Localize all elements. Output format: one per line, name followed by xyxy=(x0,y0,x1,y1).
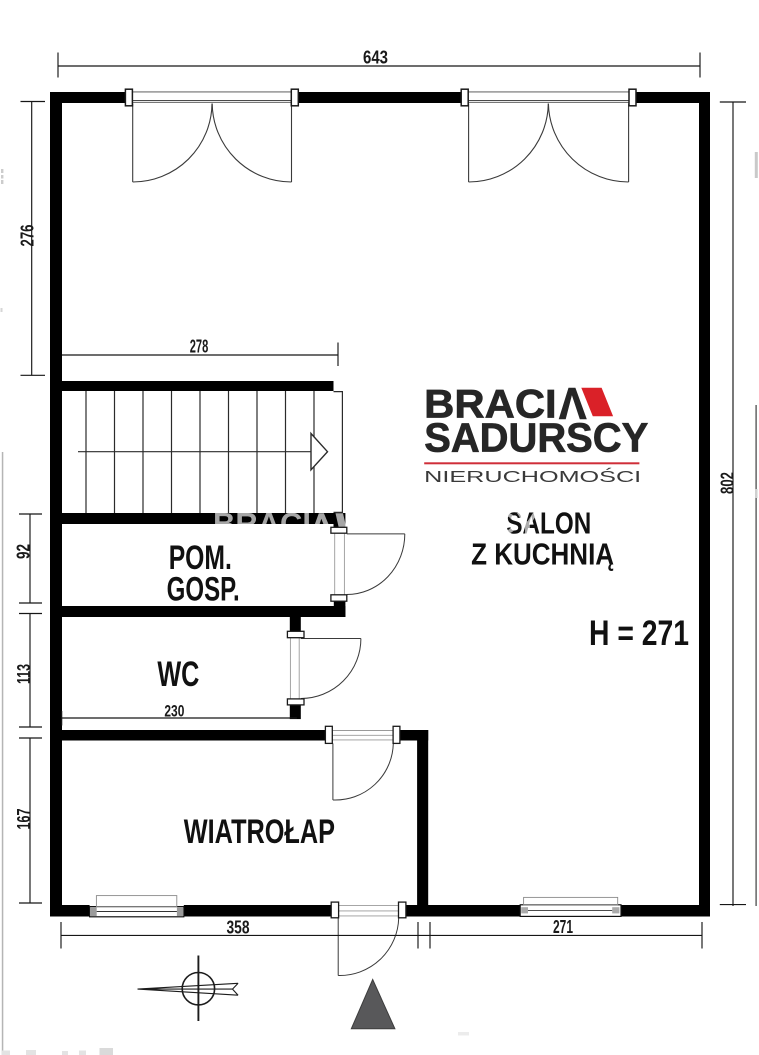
svg-text:230: 230 xyxy=(164,703,184,721)
svg-text:WC: WC xyxy=(157,655,199,694)
svg-text:643: 643 xyxy=(363,47,388,68)
svg-text:Z KUCHNIĄ: Z KUCHNIĄ xyxy=(471,537,614,572)
svg-text:BRACI: BRACI xyxy=(213,508,311,541)
svg-text:SADURSCY: SADURSCY xyxy=(353,508,539,541)
svg-text:SADURSCY: SADURSCY xyxy=(424,415,648,461)
svg-text:NIERUCHOMOŚCI: NIERUCHOMOŚCI xyxy=(424,467,641,486)
svg-text:H = 271: H = 271 xyxy=(589,614,689,653)
svg-text:WIATROŁAP: WIATROŁAP xyxy=(184,813,335,851)
svg-text:358: 358 xyxy=(227,916,250,937)
svg-text:113: 113 xyxy=(13,664,34,684)
svg-text:92: 92 xyxy=(12,544,33,559)
svg-text:167: 167 xyxy=(13,809,34,830)
svg-text:276: 276 xyxy=(17,225,38,247)
svg-text:271: 271 xyxy=(553,916,573,937)
svg-text:GOSP.: GOSP. xyxy=(167,571,240,609)
svg-text:802: 802 xyxy=(716,472,737,494)
svg-text:278: 278 xyxy=(190,336,209,357)
